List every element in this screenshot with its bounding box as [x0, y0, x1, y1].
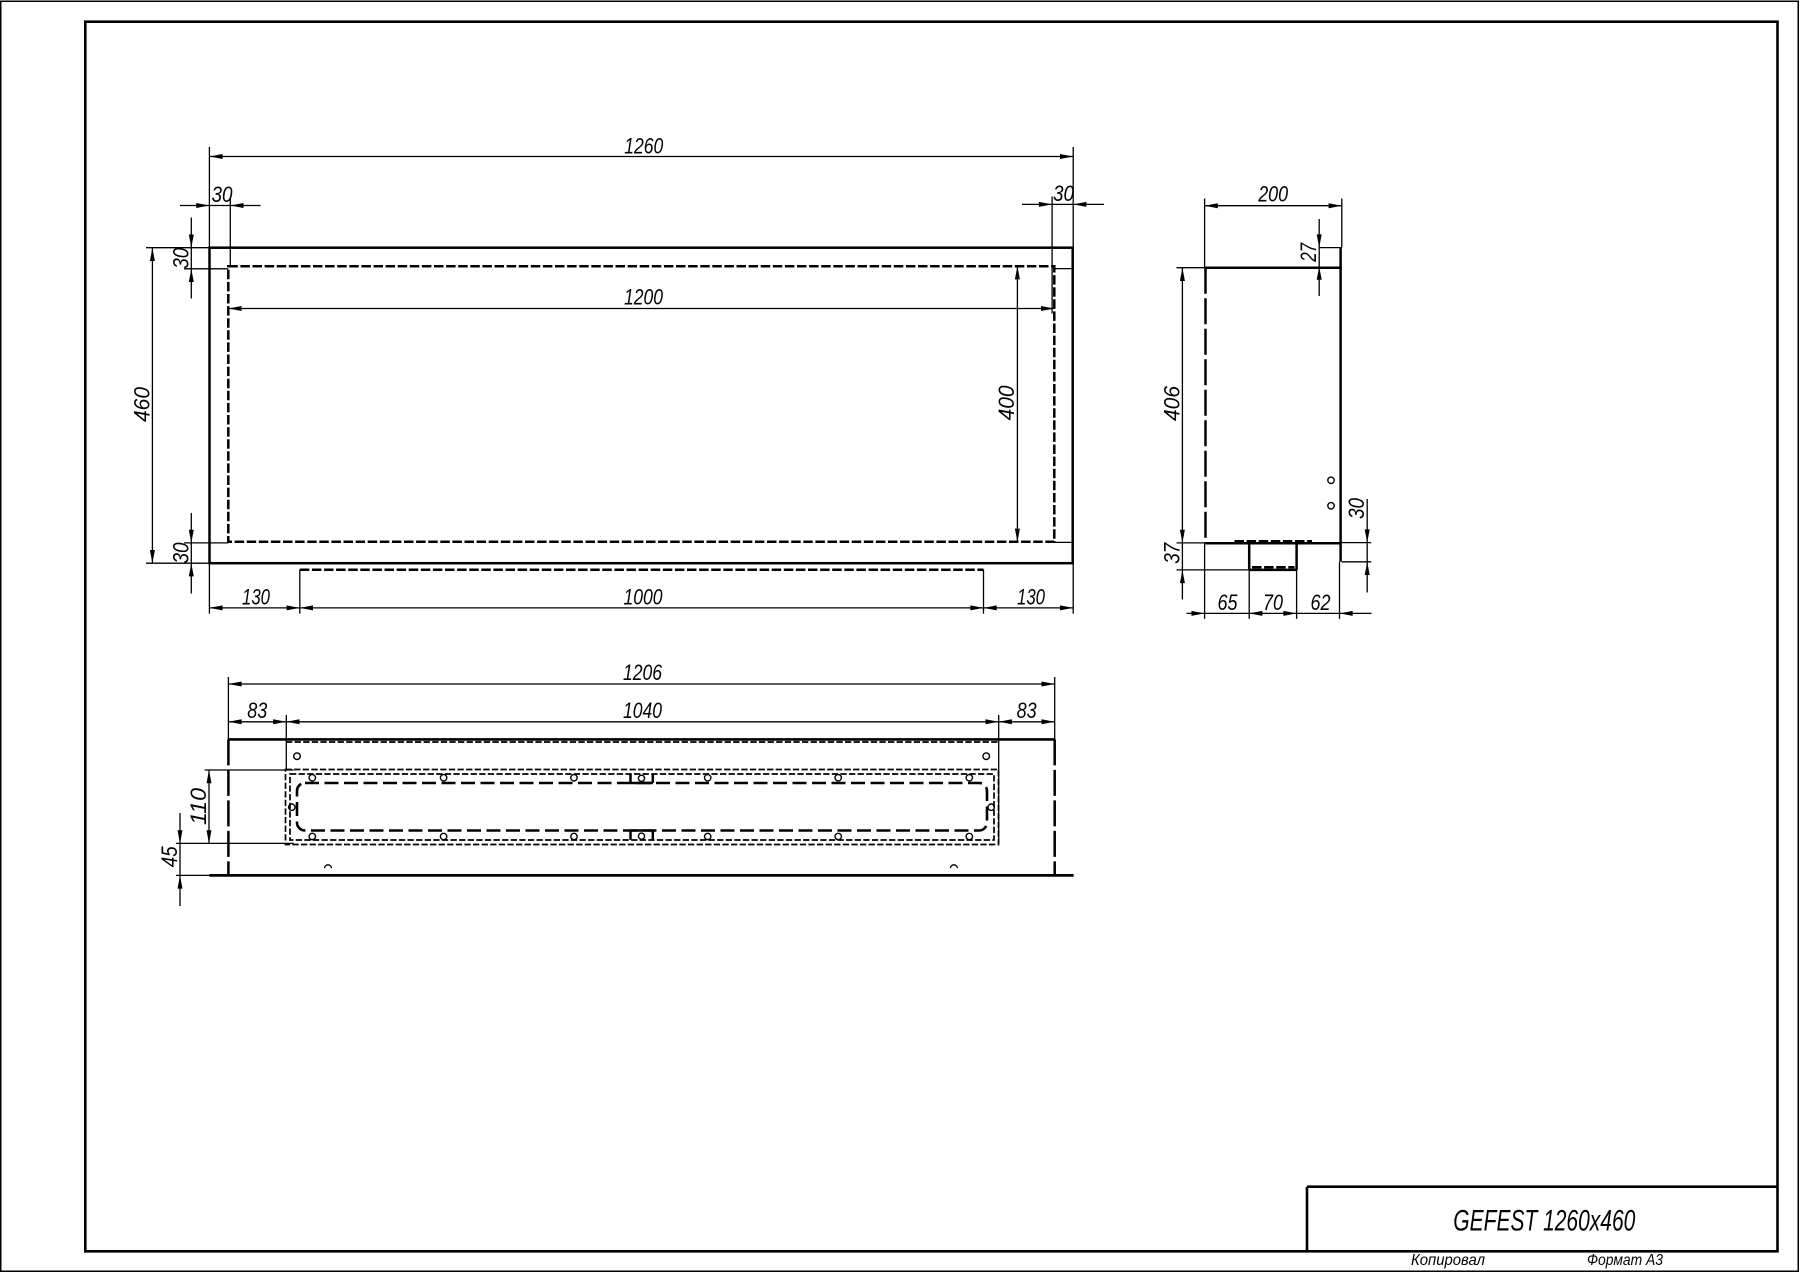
svg-text:65: 65	[1218, 590, 1239, 615]
svg-text:45: 45	[157, 846, 182, 868]
svg-text:400: 400	[994, 385, 1019, 421]
svg-text:460: 460	[129, 386, 154, 422]
svg-text:406: 406	[1159, 385, 1184, 421]
svg-text:37: 37	[1159, 542, 1184, 564]
svg-text:30: 30	[1344, 497, 1369, 519]
svg-text:30: 30	[1053, 181, 1075, 206]
svg-text:1260: 1260	[624, 133, 664, 158]
svg-text:200: 200	[1257, 182, 1288, 207]
svg-text:GEFEST 1260x460: GEFEST 1260x460	[1453, 1205, 1635, 1238]
svg-text:1000: 1000	[624, 584, 664, 609]
svg-text:62: 62	[1311, 590, 1331, 615]
svg-text:110: 110	[186, 787, 211, 825]
svg-text:Копировал: Копировал	[1411, 1252, 1485, 1269]
svg-text:70: 70	[1263, 590, 1284, 615]
svg-text:1206: 1206	[623, 660, 663, 685]
svg-text:30: 30	[168, 542, 193, 564]
svg-text:27: 27	[1296, 242, 1321, 262]
svg-text:30: 30	[168, 247, 193, 269]
svg-text:83: 83	[1017, 698, 1038, 723]
svg-text:130: 130	[1017, 584, 1046, 609]
svg-text:83: 83	[247, 698, 268, 723]
svg-text:1040: 1040	[623, 698, 663, 723]
svg-text:30: 30	[212, 182, 234, 207]
svg-text:Формат А3: Формат А3	[1587, 1252, 1663, 1269]
svg-text:1200: 1200	[624, 284, 664, 309]
svg-text:130: 130	[242, 584, 271, 609]
